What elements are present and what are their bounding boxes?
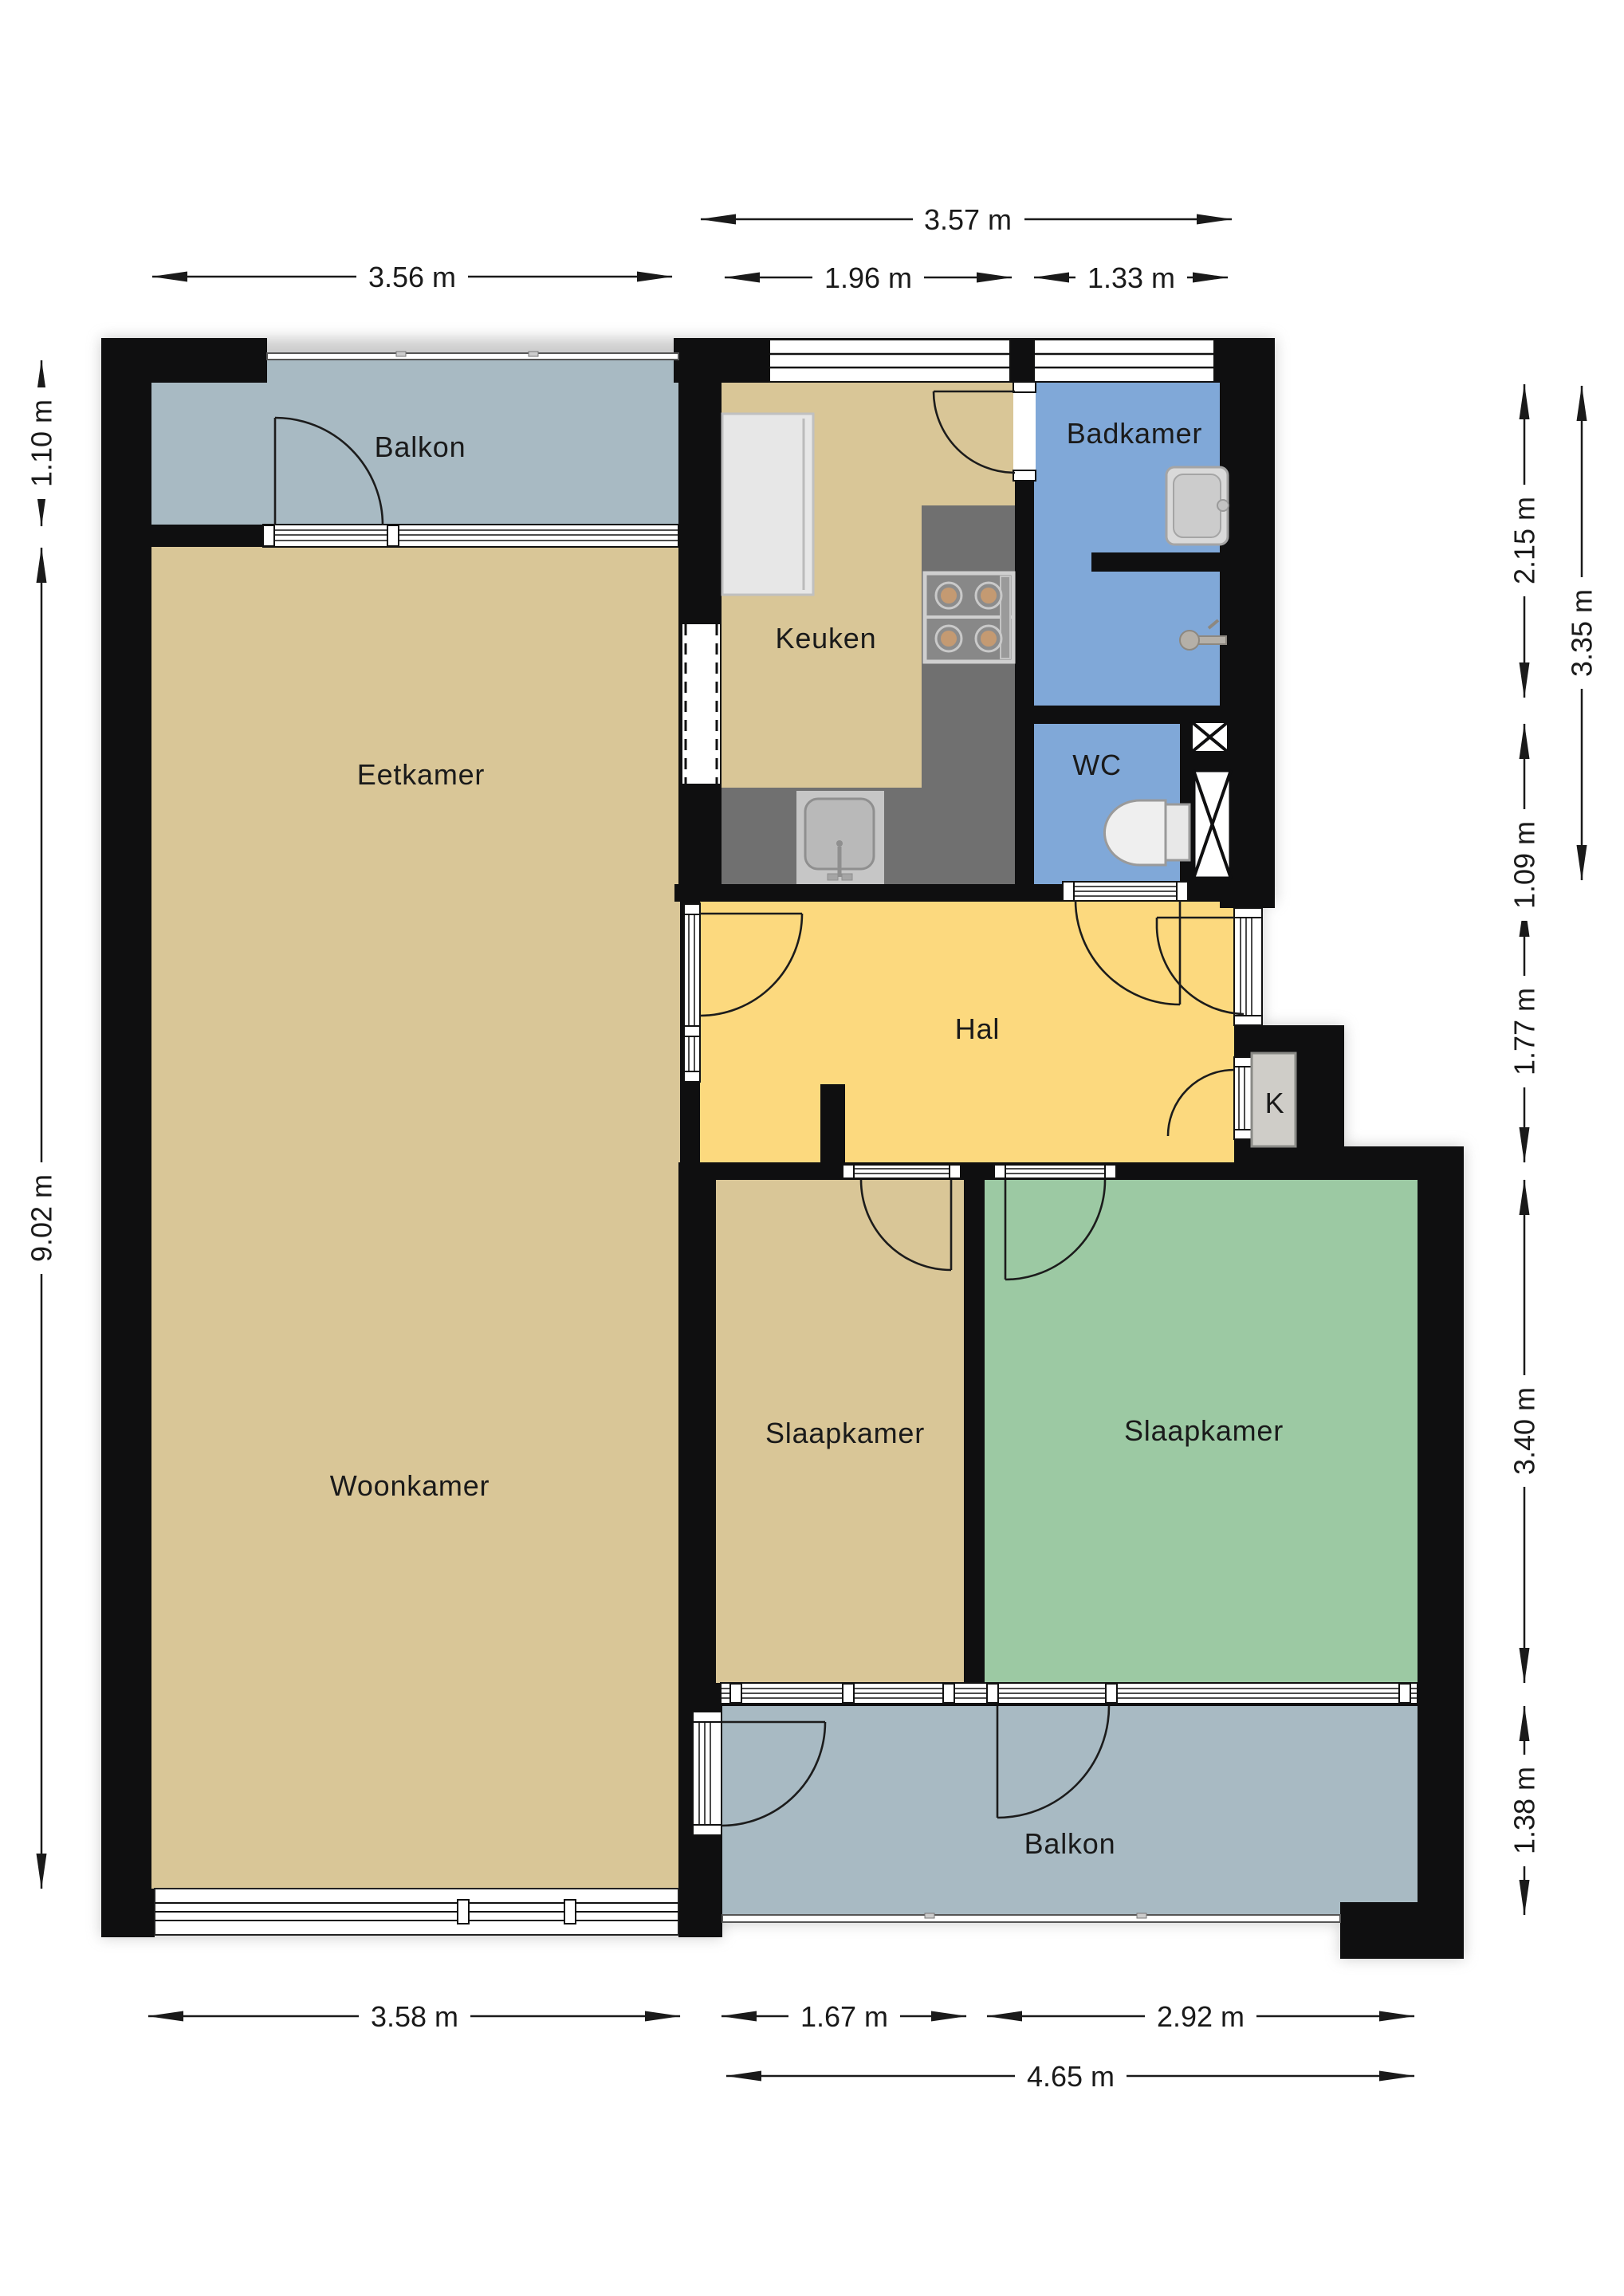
- svg-text:1.38 m: 1.38 m: [1508, 1767, 1541, 1854]
- svg-text:Balkon: Balkon: [1024, 1827, 1116, 1860]
- svg-text:3.57 m: 3.57 m: [924, 203, 1012, 236]
- svg-text:1.09 m: 1.09 m: [1508, 821, 1541, 909]
- svg-text:3.40 m: 3.40 m: [1508, 1387, 1541, 1475]
- svg-text:K: K: [1265, 1087, 1285, 1119]
- svg-text:Balkon: Balkon: [375, 431, 466, 463]
- svg-text:2.15 m: 2.15 m: [1508, 497, 1541, 584]
- svg-text:Eetkamer: Eetkamer: [357, 758, 485, 791]
- svg-text:1.96 m: 1.96 m: [824, 261, 912, 294]
- svg-text:Slaapkamer: Slaapkamer: [765, 1417, 925, 1449]
- svg-text:4.65 m: 4.65 m: [1027, 2060, 1115, 2093]
- svg-text:Slaapkamer: Slaapkamer: [1124, 1414, 1284, 1447]
- svg-text:Hal: Hal: [955, 1012, 1000, 1045]
- svg-text:3.56 m: 3.56 m: [368, 261, 456, 293]
- svg-text:Woonkamer: Woonkamer: [330, 1469, 490, 1502]
- svg-text:WC: WC: [1072, 749, 1122, 781]
- svg-text:1.33 m: 1.33 m: [1087, 261, 1175, 294]
- svg-text:9.02 m: 9.02 m: [26, 1174, 58, 1262]
- svg-text:3.35 m: 3.35 m: [1566, 589, 1598, 677]
- svg-text:1.10 m: 1.10 m: [26, 399, 58, 487]
- svg-text:Keuken: Keuken: [776, 622, 877, 655]
- svg-text:Badkamer: Badkamer: [1067, 417, 1202, 450]
- svg-text:1.77 m: 1.77 m: [1508, 988, 1541, 1075]
- svg-text:2.92 m: 2.92 m: [1157, 2000, 1245, 2033]
- svg-text:3.58 m: 3.58 m: [371, 2000, 458, 2033]
- svg-text:1.67 m: 1.67 m: [800, 2000, 888, 2033]
